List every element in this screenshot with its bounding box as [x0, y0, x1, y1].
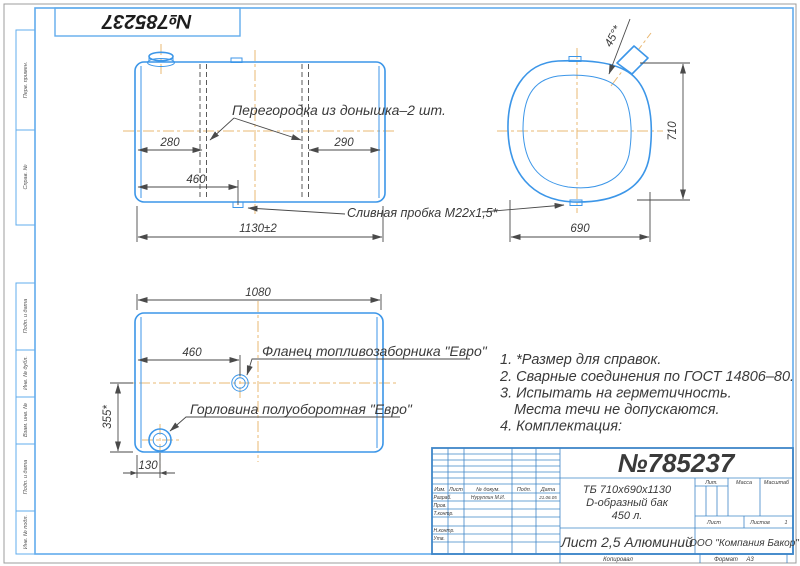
col-data: Дата	[540, 487, 555, 493]
baffle-lines	[200, 64, 309, 200]
title-block: Изм. Лист № докум. Подп. Дата Разраб. Ну…	[432, 448, 799, 563]
company-name: ООО "Компания Бакор"	[689, 538, 799, 549]
baffle-callout-text: Перегородка из донышка–2 шт.	[232, 102, 446, 118]
note-1: 1. *Размер для справок.	[500, 352, 661, 368]
col-izm: Изм.	[434, 487, 446, 493]
kopiroval-label: Копировал	[603, 557, 633, 563]
dim-text-710: 710	[667, 121, 679, 141]
stamp-box: №785237	[55, 8, 240, 36]
neck-callout-text: Горловина полуоборотная "Евро"	[190, 401, 413, 417]
dim-text-1080: 1080	[245, 287, 271, 299]
masshtab-label: Масштаб	[764, 480, 790, 486]
drain-callout-text: Сливная пробка М22х1,5*	[347, 206, 499, 220]
format-label: Формат	[714, 557, 738, 563]
listov-label: Листов	[749, 520, 770, 526]
margin-label-podp-data-2: Подп. и дата	[23, 460, 29, 494]
dim-text-460: 460	[186, 174, 206, 186]
row-prov: Пров.	[434, 503, 447, 509]
dim-text-355: 355*	[102, 405, 114, 429]
listov-value: 1	[785, 520, 788, 526]
col-podp: Подп.	[517, 487, 531, 493]
margin-label-inv-dubl: Инв. № дубл.	[23, 356, 29, 390]
row-nkontr: Н.контр.	[434, 528, 455, 534]
stamp-number: №785237	[101, 10, 192, 32]
side-view: 280 290 460 1130±2 Перегородка из донышк…	[123, 44, 564, 242]
margin-label-vzam-inv: Взам. инв. №	[23, 403, 29, 437]
baffle-leader-left	[210, 118, 234, 140]
note-2: 2. Сварные соединения по ГОСТ 14806–80.	[499, 369, 794, 385]
razrab-date: 21.06.05	[538, 495, 557, 500]
flange-callout-text: Фланец топливозаборника "Евро"	[262, 343, 488, 359]
filler-neck-45	[617, 46, 648, 74]
dim-text-280: 280	[159, 137, 180, 149]
dim-text-460: 460	[182, 347, 202, 359]
row-tkontr: Т.контр.	[434, 511, 454, 517]
flange-leader	[247, 359, 470, 375]
neck-leader	[170, 417, 400, 431]
row-razrab: Разраб.	[434, 495, 452, 501]
margin-label-perv-primen: Перв. примен.	[23, 62, 29, 99]
dim-text-690: 690	[570, 223, 590, 235]
note-3b: Места течи не допускаются.	[514, 402, 720, 418]
drawing-sheet: Перв. примен. Справ. № Подп. и дата Инв.…	[0, 0, 800, 566]
dim-text-45: 45°*	[603, 24, 624, 49]
note-4: 4. Комплектация:	[500, 419, 622, 435]
drain-leader-left	[248, 208, 345, 214]
baffle-leader-right	[234, 118, 301, 140]
format-value: А3	[745, 557, 754, 563]
arrow-130-right	[160, 471, 167, 475]
top-view: 1080 460 355* 130 Фланец топливозаборник…	[102, 287, 488, 478]
dim-text-1130: 1130±2	[239, 223, 277, 235]
blueprint-canvas: Перв. примен. Справ. № Подп. и дата Инв.…	[0, 0, 800, 566]
arrow-130-left	[131, 471, 138, 475]
dim-text-290: 290	[333, 137, 354, 149]
row-utv: Утв.	[434, 536, 445, 542]
lit-label: Лит.	[704, 480, 718, 486]
desc-line2: D-образный бак	[586, 497, 669, 509]
margin-column: Перв. примен. Справ. № Подп. и дата Инв.…	[16, 30, 35, 554]
margin-label-inv-podl: Инв. № подл.	[23, 515, 29, 549]
margin-label-podp-data-1: Подп. и дата	[23, 299, 29, 333]
desc-line3: 450 л.	[612, 510, 643, 522]
razrab-name: Нуруллин М.И.	[471, 495, 505, 501]
technical-notes: 1. *Размер для справок. 2. Сварные соеди…	[499, 352, 794, 435]
col-dokum: № докум.	[476, 487, 500, 493]
sheet-frame	[4, 4, 796, 563]
desc-line1: ТБ 710х690х1130	[583, 484, 672, 496]
note-3: 3. Испытать на герметичность.	[500, 386, 732, 402]
material: Лист 2,5 Алюминий	[560, 534, 693, 550]
margin-label-sprav-no: Справ. №	[23, 164, 29, 189]
col-list: Лист	[448, 487, 463, 493]
dim-text-130: 130	[138, 460, 158, 472]
tank-body-outline	[135, 62, 385, 202]
outer-border	[4, 4, 796, 563]
massa-label: Масса	[736, 480, 752, 486]
list-label: Лист	[706, 520, 721, 526]
doc-number: №785237	[618, 448, 736, 478]
